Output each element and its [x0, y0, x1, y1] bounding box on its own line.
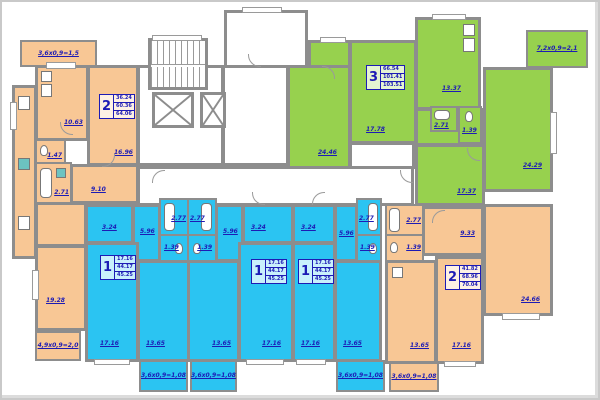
room-hall: 3.24 — [85, 204, 134, 244]
balcony-area-label: 3,6x0,9=1,08 — [338, 373, 383, 379]
room-area-label: 2.77 — [406, 218, 421, 224]
hall-extension — [35, 202, 87, 247]
cabinet-icon — [18, 96, 30, 110]
window — [432, 14, 466, 20]
apartment-living-area: 66.54 — [381, 66, 404, 74]
elevator-shaft — [200, 92, 226, 128]
room-wc: 1.39 — [356, 234, 382, 262]
sink-icon — [463, 24, 475, 36]
balcony: 4,9x0,9=2,0 — [35, 331, 81, 361]
room-living: 1 17.16 44.17 45.25 17.16 — [238, 242, 294, 362]
bathtub-icon — [389, 208, 400, 232]
window — [296, 359, 326, 365]
apartment-total-with-balconies: 45.25 — [266, 276, 286, 283]
room-hall: 9.10 — [70, 164, 139, 204]
window — [502, 313, 540, 320]
apartment-living-area: 17.16 — [266, 260, 286, 268]
room-bathroom: 2.77 — [385, 204, 424, 236]
window — [10, 102, 17, 130]
room-hall: 3.24 — [242, 204, 294, 244]
room-living: 1 17.16 44.17 45.25 17.16 — [85, 242, 139, 362]
apartment-total-area: 44.17 — [313, 268, 333, 276]
sink-icon — [41, 71, 52, 82]
room-area-label: 2.77 — [359, 216, 374, 222]
room-bathroom: 2.71 — [430, 106, 458, 132]
room-kitchen: 13.37 — [415, 17, 481, 110]
apartment-living-area: 17.16 — [313, 260, 333, 268]
apartment-room-count: 1 — [299, 260, 313, 283]
balcony: 3,6x0,9=1,08 — [139, 360, 188, 392]
room-area-label: 1.39 — [360, 245, 375, 251]
room-area-label: 13.37 — [442, 86, 461, 92]
green-hallway — [308, 40, 351, 68]
sink-icon — [392, 267, 403, 278]
stove-icon — [463, 38, 475, 52]
apartment-room-count: 2 — [446, 266, 460, 289]
apartment-room-count: 2 — [100, 95, 114, 118]
room-kitchen: 13.65 — [385, 260, 437, 364]
room-area-label: 5.96 — [140, 229, 155, 235]
room-living: 2 36.24 60.36 64.06 16.96 — [87, 65, 139, 166]
room-area-label: 13.65 — [410, 343, 429, 349]
room-area-label: 24.29 — [523, 163, 542, 169]
room-area-label: 9.10 — [91, 187, 106, 193]
balcony-area-label: 4,9x0,9=2,0 — [38, 343, 79, 349]
room-area-label: 2.77 — [190, 216, 205, 222]
room-area-label: 17.16 — [100, 341, 119, 347]
elevator-shaft — [152, 92, 194, 128]
room-area-label: 3.24 — [102, 225, 117, 231]
window — [320, 37, 346, 43]
balcony-area-label: 3,6x0,9=1,08 — [141, 373, 186, 379]
room-area-label: 13.65 — [212, 341, 231, 347]
apartment-total-area: 60.36 — [114, 103, 134, 111]
room-bedroom: 19.28 — [35, 245, 87, 331]
stove-icon — [41, 84, 52, 97]
room-area-label: 13.65 — [146, 341, 165, 347]
apartment-total-with-balconies: 70.04 — [460, 282, 480, 289]
room-wc: 1.39 — [385, 234, 424, 262]
room-kitchen: 13.65 — [334, 260, 382, 362]
room-area-label: 19.28 — [46, 298, 65, 304]
room-area-label: 3.24 — [301, 225, 316, 231]
apartment-total-area: 101.41 — [381, 74, 404, 82]
balcony: 7,2x0,9=2,1 — [526, 30, 588, 68]
room-area-label: 1.39 — [462, 128, 477, 134]
apartment-label: 1 17.16 44.17 45.25 — [298, 259, 334, 284]
bathtub-icon — [434, 110, 450, 120]
window — [46, 62, 76, 69]
room-area-label: 5.96 — [339, 231, 354, 237]
window — [242, 7, 282, 13]
room-area-label: 3.24 — [251, 225, 266, 231]
washer-icon — [18, 158, 30, 170]
room-area-label: 24.46 — [318, 150, 337, 156]
apartment-room-count: 1 — [101, 256, 115, 279]
room-bedroom: 24.29 — [483, 67, 553, 192]
room-living: 1 17.16 44.17 45.25 17.16 — [292, 242, 336, 362]
apartment-living-area: 17.16 — [115, 256, 135, 264]
room-area-label: 1.39 — [197, 245, 212, 251]
room-area-label: 1.39 — [164, 245, 179, 251]
room-area-label: 1.39 — [406, 245, 421, 251]
apartment-total-area: 44.17 — [266, 268, 286, 276]
balcony-area-label: 7,2x0,9=2,1 — [537, 46, 578, 52]
apartment-total-area: 44.17 — [115, 264, 135, 272]
room-living: 24.46 — [287, 65, 351, 169]
apartment-label: 1 17.16 44.17 45.25 — [100, 255, 136, 280]
room-hall: 3.24 — [292, 204, 336, 244]
room-bathroom: 2.77 — [187, 198, 217, 236]
room-bedroom: 2 41.82 68.96 70.04 17.16 — [435, 256, 484, 364]
apartment-label: 3 66.54 101.41 103.51 — [366, 65, 405, 90]
balcony: 3,6x0,9=1,08 — [190, 360, 237, 392]
balcony: 3,6x0,9=1,08 — [336, 360, 385, 392]
apartment-total-with-balconies: 45.25 — [115, 272, 135, 279]
washer-icon — [56, 168, 66, 178]
room-bathroom: 2.77 — [159, 198, 189, 236]
elevator-cross-icon — [203, 95, 223, 125]
room-area-label: 24.66 — [521, 297, 540, 303]
room-kitchen: 13.65 — [137, 260, 190, 362]
room-living: 24.66 — [483, 204, 553, 316]
apartment-room-count: 3 — [367, 66, 381, 89]
floor-plan: 3,6x0,9=1,5 10.63 2 36.24 60.36 64.06 16… — [0, 0, 600, 400]
apartment-total-with-balconies: 45.25 — [313, 276, 333, 283]
staircase — [148, 38, 208, 90]
apartment-label: 2 36.24 60.36 64.06 — [99, 94, 135, 119]
apartment-living-area: 36.24 — [114, 95, 134, 103]
room-bathroom: 2.71 — [35, 162, 72, 204]
balcony: 3,6x0,9=1,08 — [389, 362, 439, 392]
balcony-area-label: 3,6x0,9=1,08 — [191, 373, 236, 379]
room-kitchen: 13.65 — [187, 260, 240, 362]
room-area-label: 9.33 — [460, 231, 475, 237]
room-area-label: 2.71 — [434, 123, 449, 129]
window — [444, 361, 476, 367]
entrance-vestibule — [224, 10, 308, 68]
room-area-label: 17.16 — [301, 341, 320, 347]
apartment-total-area: 68.96 — [460, 274, 480, 282]
corridor-patch — [349, 142, 415, 169]
window — [246, 359, 284, 365]
room-wc: 1.39 — [159, 234, 189, 262]
room-area-label: 17.37 — [457, 189, 476, 195]
apartment-total-with-balconies: 103.51 — [381, 82, 404, 89]
bathtub-icon — [40, 168, 52, 198]
window — [94, 359, 130, 365]
room-area-label: 17.78 — [366, 127, 385, 133]
room-area-label: 13.65 — [343, 341, 362, 347]
toilet-icon — [390, 242, 398, 253]
apartment-total-with-balconies: 64.06 — [114, 111, 134, 118]
room-bedroom: 3 66.54 101.41 103.51 17.78 — [349, 40, 417, 144]
room-wc: 1.47 — [35, 139, 66, 164]
room-area-label: 16.96 — [114, 150, 133, 156]
room-area-label: 2.71 — [54, 190, 69, 196]
window — [152, 35, 202, 41]
room-wc: 1.39 — [187, 234, 217, 262]
balcony-area-label: 3,6x0,9=1,08 — [392, 374, 437, 380]
room-area-label: 17.16 — [452, 343, 471, 349]
apartment-label: 1 17.16 44.17 45.25 — [251, 259, 287, 284]
cabinet-icon — [18, 216, 30, 230]
apartment-living-area: 41.82 — [460, 266, 480, 274]
elevator-cross-icon — [155, 95, 191, 125]
room-area-label: 5.96 — [223, 229, 238, 235]
window — [550, 112, 557, 154]
room-hall: 9.33 — [422, 206, 484, 256]
toilet-icon — [465, 111, 473, 122]
room-area-label: 2.77 — [171, 216, 186, 222]
room-bathroom: 2.77 — [356, 198, 382, 236]
room-corridor: 5.96 — [334, 204, 358, 262]
room-area-label: 17.16 — [262, 341, 281, 347]
balcony-area-label: 3,6x0,9=1,5 — [38, 51, 79, 57]
apartment-label: 2 41.82 68.96 70.04 — [445, 265, 481, 290]
window — [32, 270, 39, 300]
elevator-lobby — [222, 65, 289, 166]
room-area-label: 1.47 — [47, 153, 62, 159]
apartment-room-count: 1 — [252, 260, 266, 283]
room-wc: 1.39 — [458, 106, 482, 144]
